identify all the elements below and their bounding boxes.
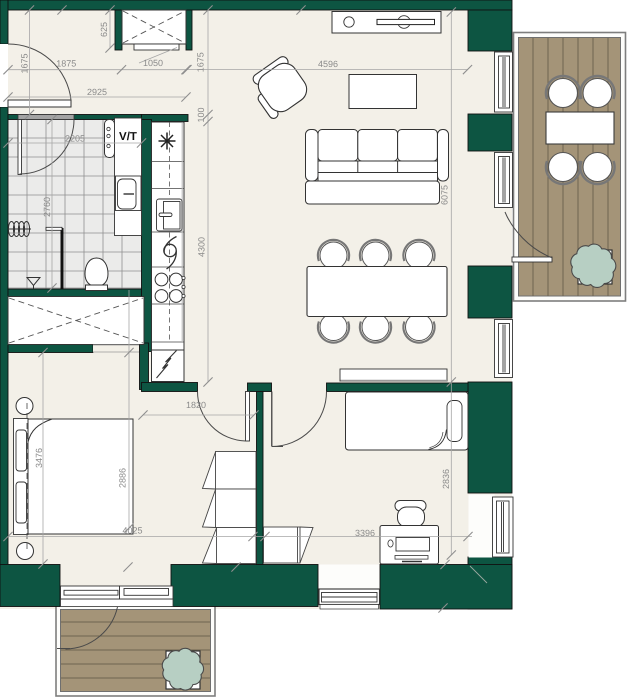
svg-text:1820: 1820: [186, 400, 206, 410]
svg-text:2760: 2760: [42, 197, 52, 217]
svg-text:625: 625: [99, 22, 109, 37]
svg-text:2886: 2886: [118, 468, 128, 488]
svg-text:4025: 4025: [123, 526, 143, 536]
svg-text:1875: 1875: [56, 59, 76, 69]
svg-text:4300: 4300: [197, 237, 207, 257]
svg-text:1050: 1050: [143, 58, 163, 68]
svg-text:2925: 2925: [87, 87, 107, 97]
svg-text:6075: 6075: [440, 185, 450, 205]
svg-text:3396: 3396: [355, 528, 375, 538]
svg-text:2836: 2836: [441, 469, 451, 489]
svg-text:1675: 1675: [196, 52, 206, 72]
svg-text:V/T: V/T: [119, 131, 137, 143]
svg-text:100: 100: [196, 107, 206, 122]
svg-text:1675: 1675: [20, 53, 30, 73]
svg-text:3476: 3476: [34, 448, 44, 468]
svg-text:2205: 2205: [65, 134, 85, 144]
svg-text:4596: 4596: [318, 59, 338, 69]
